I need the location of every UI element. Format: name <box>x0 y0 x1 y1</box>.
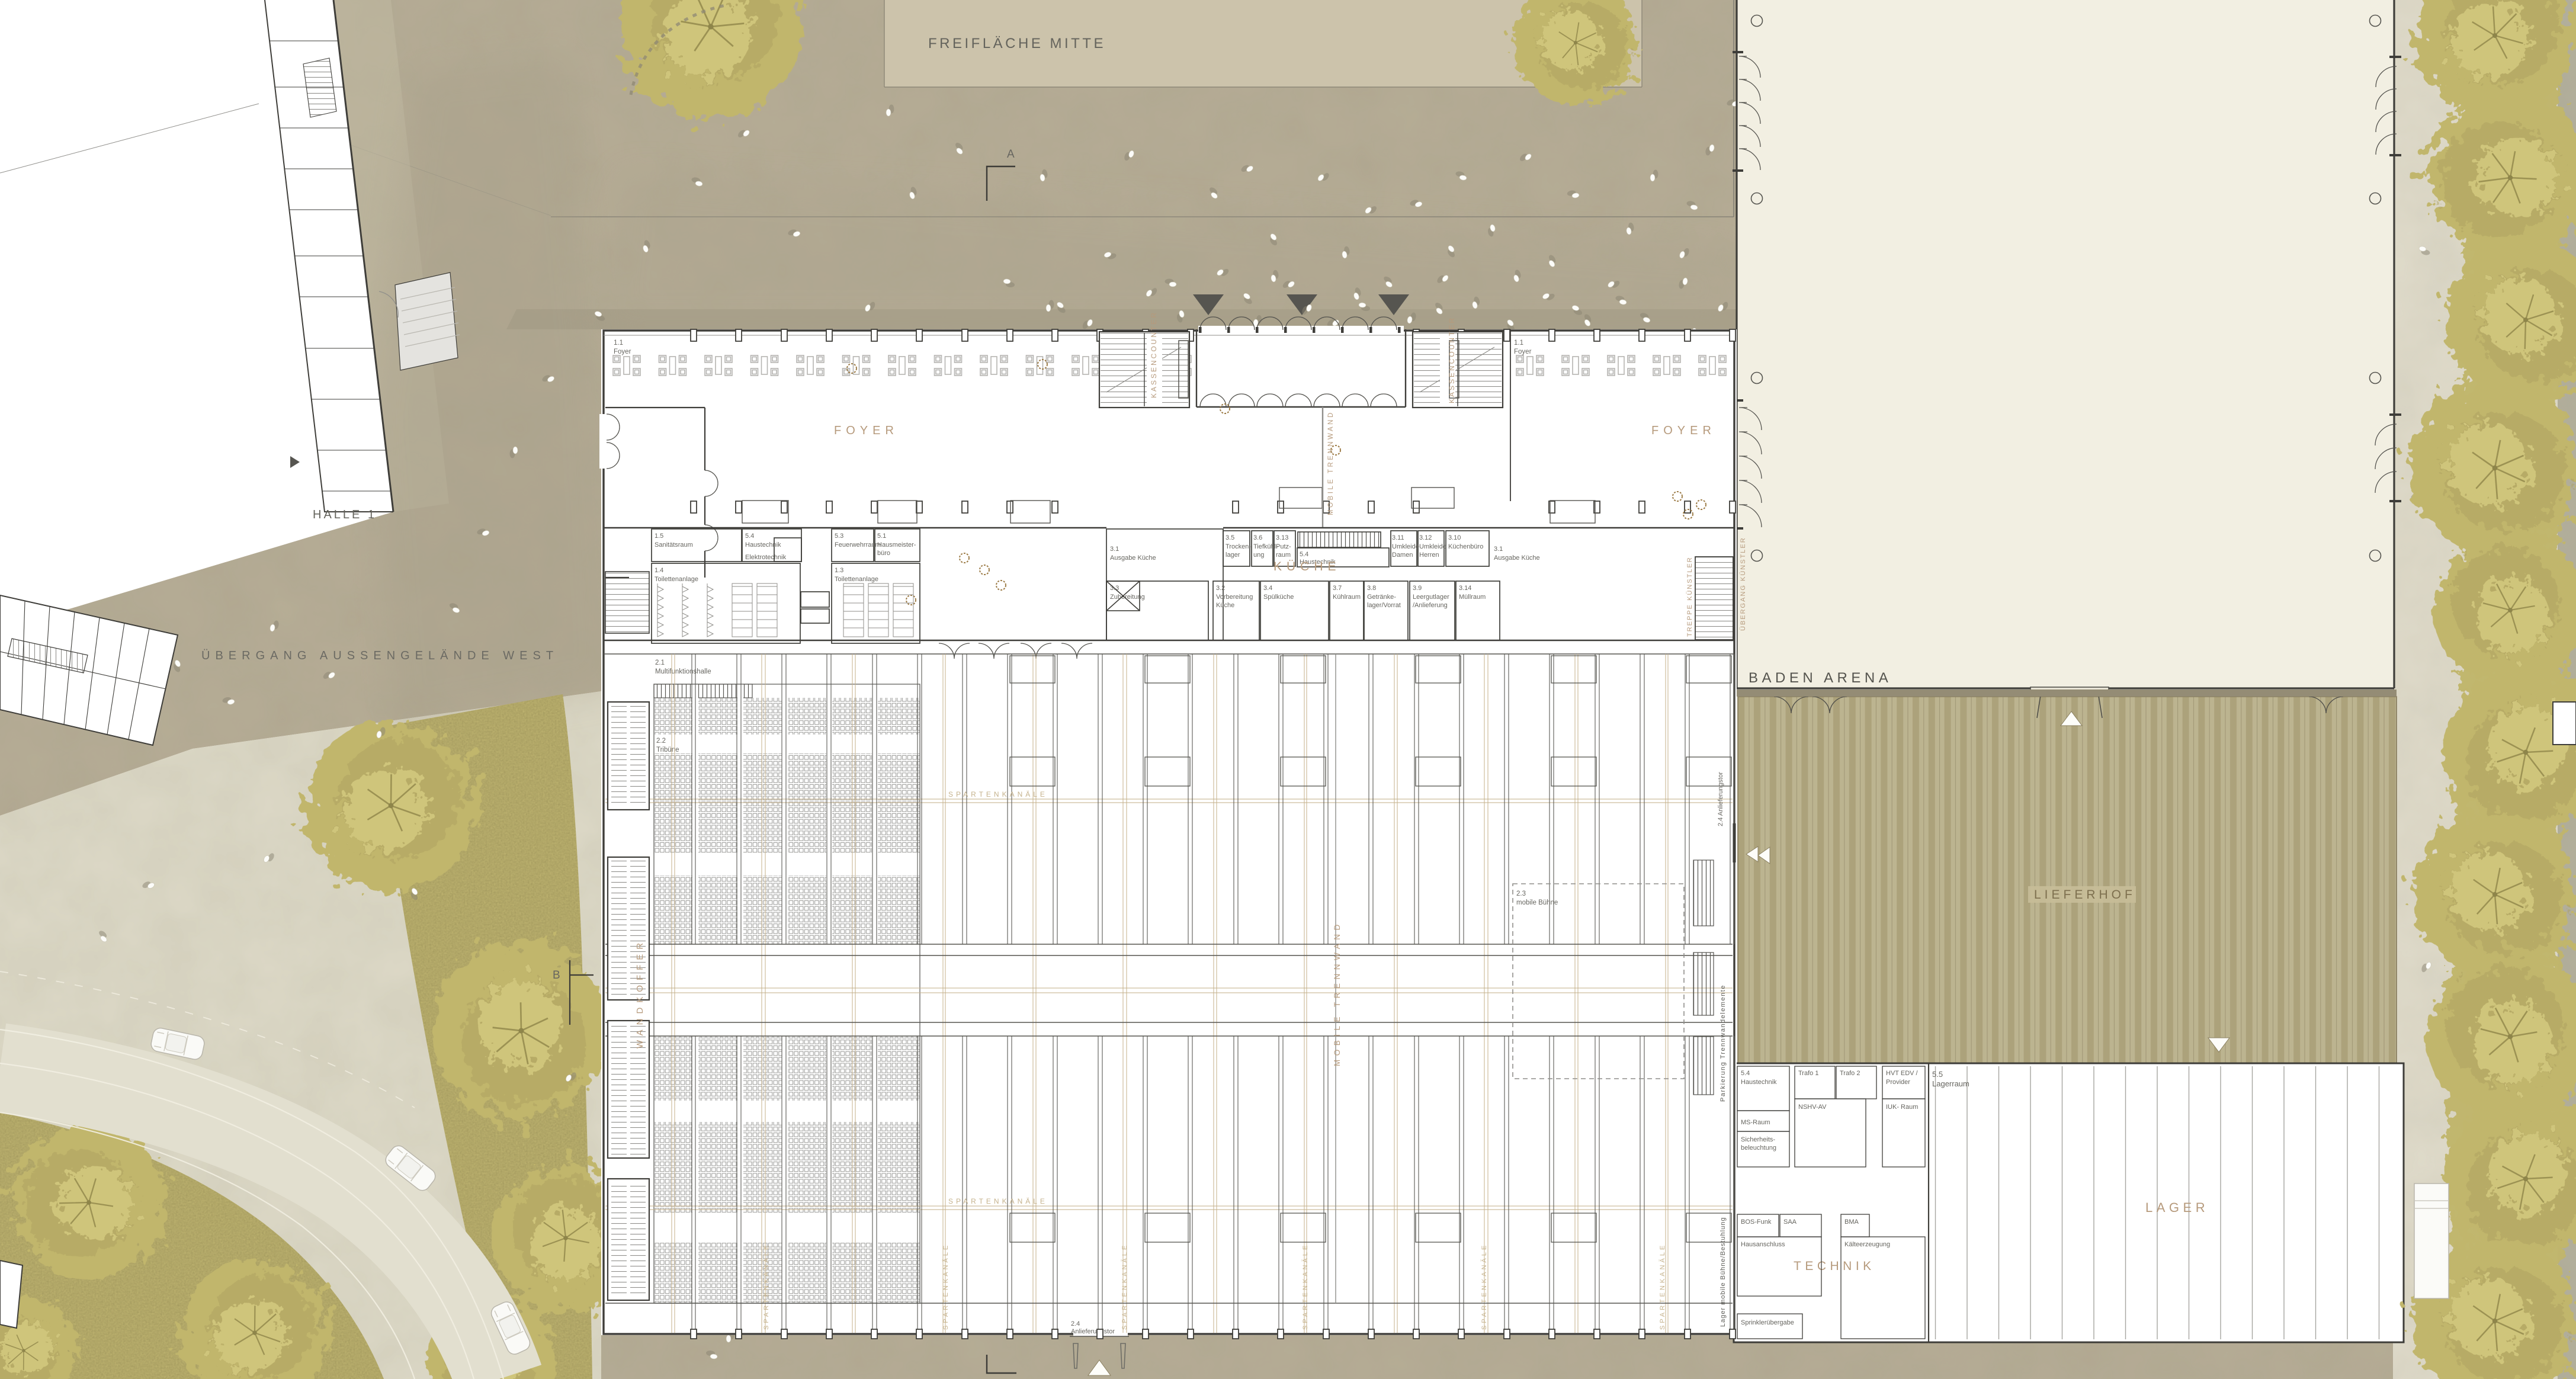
svg-text:2.4 Anlieferungstor: 2.4 Anlieferungstor <box>1717 772 1724 826</box>
svg-text:Anlieferungstor: Anlieferungstor <box>1071 1328 1115 1335</box>
svg-text:HVT EDV /: HVT EDV / <box>1886 1070 1919 1077</box>
svg-text:Multifunktionshalle: Multifunktionshalle <box>655 668 711 675</box>
svg-text:WANDKOFFER: WANDKOFFER <box>635 938 645 1048</box>
svg-text:3.14: 3.14 <box>1459 585 1471 592</box>
svg-text:5.4: 5.4 <box>1300 551 1308 558</box>
svg-text:FOYER: FOYER <box>834 424 899 437</box>
svg-text:1.1: 1.1 <box>1514 339 1523 347</box>
svg-text:1.4: 1.4 <box>655 567 663 574</box>
svg-text:Küchenbüro: Küchenbüro <box>1448 543 1483 550</box>
svg-text:B: B <box>553 969 560 982</box>
svg-text:mobile Bühne: mobile Bühne <box>1516 899 1558 906</box>
svg-text:1.5: 1.5 <box>655 533 663 540</box>
svg-text:Provider: Provider <box>1886 1079 1910 1086</box>
svg-text:TREPPE KÜNSTLER: TREPPE KÜNSTLER <box>1686 556 1693 637</box>
svg-text:lager: lager <box>1226 551 1240 559</box>
svg-text:ÜBERGANG KÜNSTLER: ÜBERGANG KÜNSTLER <box>1740 537 1747 631</box>
svg-text:3.13: 3.13 <box>1276 534 1288 541</box>
svg-text:Umkleide: Umkleide <box>1419 543 1446 550</box>
svg-text:IUK- Raum: IUK- Raum <box>1886 1104 1918 1111</box>
svg-text:SPARTENKANÄLE: SPARTENKANÄLE <box>763 1243 770 1330</box>
svg-text:SPARTENKANÄLE: SPARTENKANÄLE <box>1121 1243 1128 1330</box>
svg-text:3.4: 3.4 <box>1263 585 1272 592</box>
svg-text:SPARTENKANÄLE: SPARTENKANÄLE <box>1302 1243 1309 1330</box>
svg-text:SPARTENKANÄLE: SPARTENKANÄLE <box>942 1243 949 1330</box>
svg-text:3.12: 3.12 <box>1419 534 1432 541</box>
svg-text:Haustechnik: Haustechnik <box>1741 1079 1777 1086</box>
svg-text:Parkierung Trennwandelemente: Parkierung Trennwandelemente <box>1720 984 1727 1102</box>
svg-text:Herren: Herren <box>1419 551 1439 559</box>
svg-text:3.11: 3.11 <box>1392 534 1404 541</box>
svg-text:SPARTENKANÄLE: SPARTENKANÄLE <box>948 1197 1048 1205</box>
svg-text:3.1: 3.1 <box>1494 546 1503 553</box>
svg-text:KASSENCOUNTER: KASSENCOUNTER <box>1448 316 1456 403</box>
svg-text:Lagerraum: Lagerraum <box>1932 1079 1969 1088</box>
svg-text:Spülküche: Spülküche <box>1263 594 1294 601</box>
svg-text:ung: ung <box>1253 551 1264 559</box>
svg-text:Putz-: Putz- <box>1276 543 1291 550</box>
svg-text:SPARTENKANÄLE: SPARTENKANÄLE <box>948 790 1048 798</box>
svg-text:Ausgabe Küche: Ausgabe Küche <box>1110 554 1156 562</box>
svg-text:Toilettenanlage: Toilettenanlage <box>655 576 698 583</box>
svg-text:1.3: 1.3 <box>835 567 843 574</box>
svg-text:FREIFLÄCHE MITTE: FREIFLÄCHE MITTE <box>928 36 1106 52</box>
svg-text:MOBILE TRENNWAND: MOBILE TRENNWAND <box>1327 411 1334 515</box>
svg-text:3.1: 3.1 <box>1110 546 1119 553</box>
svg-text:lager/Vorrat: lager/Vorrat <box>1367 602 1401 609</box>
svg-text:Müllraum: Müllraum <box>1459 594 1486 601</box>
svg-text:Küche: Küche <box>1216 602 1234 609</box>
svg-text:büro: büro <box>877 550 890 557</box>
svg-text:Vorbereitung: Vorbereitung <box>1216 594 1253 601</box>
svg-text:Feuerwehrraum: Feuerwehrraum <box>835 541 881 549</box>
svg-text:KÜCHE: KÜCHE <box>1273 560 1341 573</box>
svg-text:3.2: 3.2 <box>1216 585 1225 592</box>
svg-text:Haustechnik: Haustechnik <box>745 541 781 549</box>
svg-text:FOYER: FOYER <box>1651 424 1716 437</box>
svg-text:3.8: 3.8 <box>1367 585 1376 592</box>
svg-text:BADEN ARENA: BADEN ARENA <box>1749 670 1892 686</box>
svg-text:3.10: 3.10 <box>1448 534 1461 541</box>
svg-text:Hausanschluss: Hausanschluss <box>1741 1241 1785 1248</box>
svg-text:Kühlraum: Kühlraum <box>1333 594 1361 601</box>
svg-text:Elektrotechnik: Elektrotechnik <box>745 554 787 561</box>
svg-text:Foyer: Foyer <box>614 348 631 355</box>
svg-text:SPARTENKANÄLE: SPARTENKANÄLE <box>1481 1243 1488 1330</box>
svg-text:Trafo 1: Trafo 1 <box>1798 1070 1818 1077</box>
svg-text:Damen: Damen <box>1392 551 1413 559</box>
svg-text:Hausmeister-: Hausmeister- <box>877 541 916 549</box>
svg-text:raum: raum <box>1276 551 1291 559</box>
svg-text:Kälteerzeugung: Kälteerzeugung <box>1844 1241 1890 1248</box>
svg-text:Sanitätsraum: Sanitätsraum <box>655 541 693 549</box>
svg-text:5.4: 5.4 <box>1741 1070 1750 1077</box>
svg-text:Tribüne: Tribüne <box>656 746 679 753</box>
svg-text:/Anlieferung: /Anlieferung <box>1413 602 1448 609</box>
svg-text:1.1: 1.1 <box>614 339 623 347</box>
svg-text:Sprinklerübergabe: Sprinklerübergabe <box>1741 1319 1794 1326</box>
svg-text:5.4: 5.4 <box>745 533 754 540</box>
svg-text:MS-Raum: MS-Raum <box>1741 1119 1770 1126</box>
svg-text:3.5: 3.5 <box>1226 534 1234 541</box>
svg-text:3.7: 3.7 <box>1333 585 1342 592</box>
svg-text:Foyer: Foyer <box>1514 348 1532 355</box>
svg-text:2.3: 2.3 <box>1516 890 1526 897</box>
svg-text:5.3: 5.3 <box>835 533 843 540</box>
svg-text:3.6: 3.6 <box>1253 534 1262 541</box>
svg-text:LAGER: LAGER <box>2145 1200 2209 1215</box>
svg-text:ÜBERGANG AUSSENGELÄNDE WEST: ÜBERGANG AUSSENGELÄNDE WEST <box>201 649 559 662</box>
svg-text:MOBILE TRENNWAND: MOBILE TRENNWAND <box>1333 921 1342 1066</box>
svg-text:2.2: 2.2 <box>656 737 666 745</box>
svg-text:LIEFERHOF: LIEFERHOF <box>2034 888 2136 902</box>
svg-text:Tiefkühl-: Tiefkühl- <box>1253 543 1278 550</box>
svg-text:2.4: 2.4 <box>1071 1320 1080 1327</box>
svg-text:2.1: 2.1 <box>655 659 665 666</box>
svg-text:A: A <box>1007 148 1015 161</box>
svg-text:KASSENCOUNTER: KASSENCOUNTER <box>1150 311 1158 398</box>
svg-text:HALLE 1: HALLE 1 <box>313 508 377 521</box>
svg-text:SAA: SAA <box>1783 1218 1797 1226</box>
svg-text:Trafo 2: Trafo 2 <box>1840 1070 1860 1077</box>
svg-text:Umkleide: Umkleide <box>1392 543 1419 550</box>
svg-text:Lager mobile Bühne/Bestuhlung: Lager mobile Bühne/Bestuhlung <box>1720 1217 1727 1327</box>
svg-text:Sicherheits-: Sicherheits- <box>1741 1136 1775 1143</box>
svg-text:Ausgabe Küche: Ausgabe Küche <box>1494 554 1540 562</box>
svg-text:5.1: 5.1 <box>877 533 886 540</box>
svg-text:NSHV-AV: NSHV-AV <box>1798 1104 1827 1111</box>
svg-text:Toilettenanlage: Toilettenanlage <box>835 576 878 583</box>
svg-text:5.5: 5.5 <box>1932 1070 1943 1079</box>
svg-text:Trocken-: Trocken- <box>1226 543 1251 550</box>
svg-text:TECHNIK: TECHNIK <box>1794 1259 1875 1273</box>
svg-text:Getränke-: Getränke- <box>1367 594 1396 601</box>
svg-text:SPARTENKANÄLE: SPARTENKANÄLE <box>1659 1243 1666 1330</box>
svg-text:3.9: 3.9 <box>1413 585 1422 592</box>
svg-text:BOS-Funk: BOS-Funk <box>1741 1218 1772 1226</box>
svg-text:beleuchtung: beleuchtung <box>1741 1144 1776 1152</box>
svg-text:BMA: BMA <box>1844 1218 1859 1226</box>
svg-text:Leergutlager: Leergutlager <box>1413 594 1449 601</box>
